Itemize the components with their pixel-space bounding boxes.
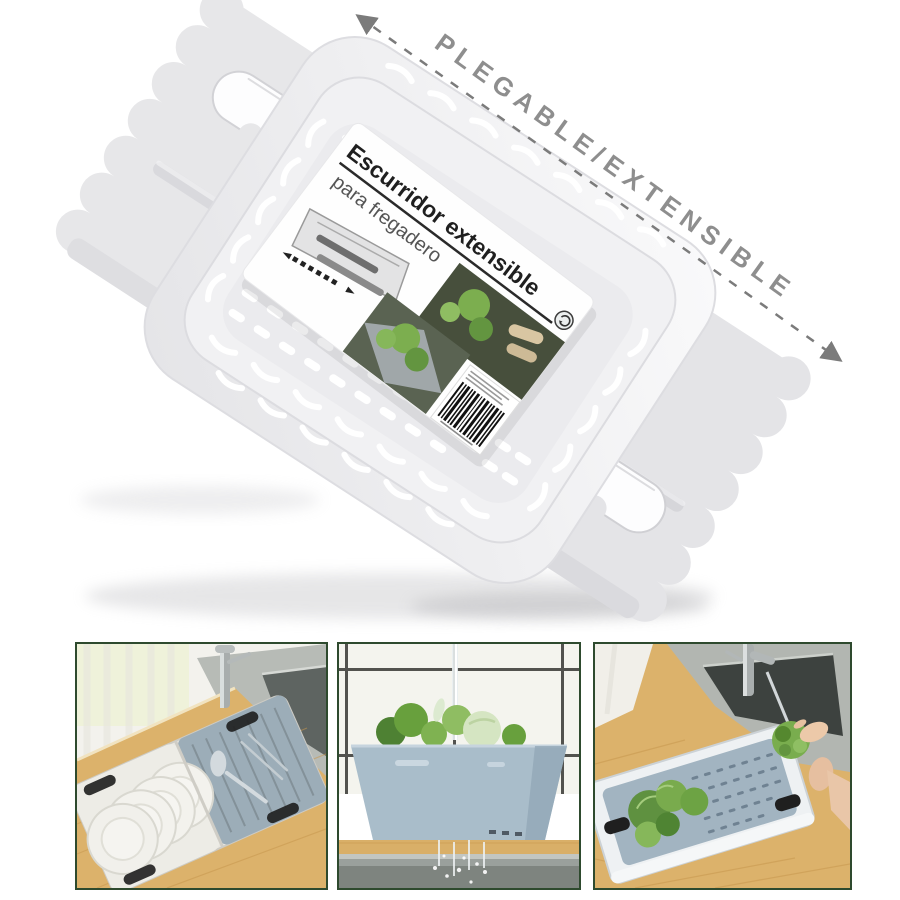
scene-basin-draining (339, 644, 579, 888)
gallery-frame-rinsing (593, 642, 852, 890)
product: Escurridor extensible para fregadero (20, 0, 840, 655)
scene-rinsing-lettuce (595, 644, 850, 888)
scene-plates-in-sink (77, 644, 326, 888)
gallery-frame-basin (337, 642, 581, 890)
gallery-frame-plates (75, 642, 328, 890)
product-listing-image: Escurridor extensible para fregadero (0, 0, 900, 900)
hero-product-photo: Escurridor extensible para fregadero (0, 0, 900, 655)
blue-basin (351, 746, 567, 840)
wood-ledge (339, 840, 579, 854)
